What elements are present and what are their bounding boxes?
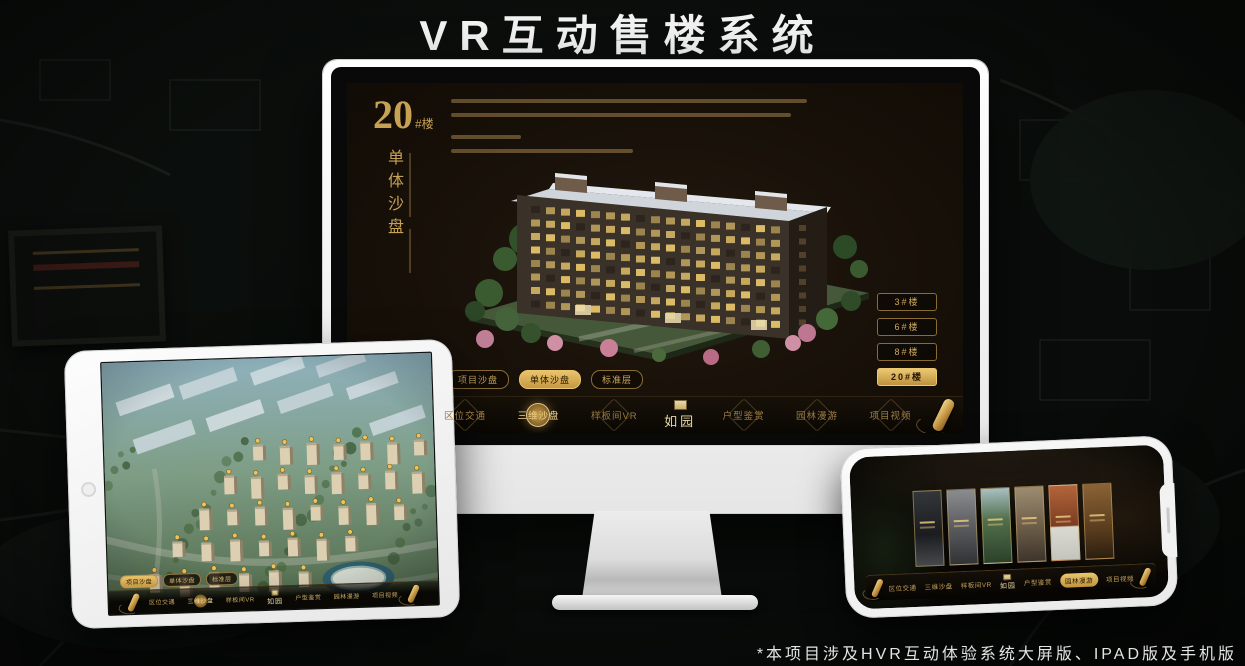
footnote: *本项目涉及HVR互动体验系统大屏版、IPAD版及手机版 [757,640,1237,664]
building-button-3[interactable]: 3#楼 [877,293,937,311]
gallery-card[interactable] [980,487,1012,564]
seal-icon [271,590,278,596]
scroll-handle-icon[interactable] [871,578,884,598]
menu-item-3d-sandtable[interactable]: 三维沙盘 [512,405,564,425]
gallery-card[interactable] [946,488,978,565]
interior-beam-decor [939,454,1090,486]
menu-item-garden-roam[interactable]: 园林漫游 [1060,572,1099,588]
scroll-handle-icon[interactable] [1139,567,1152,587]
menu-item-location-traffic[interactable]: 区位交通 [149,597,175,607]
building-heading: 20#楼 [373,95,434,135]
seal-icon [674,400,687,410]
tab-single-building-sandtable[interactable]: 单体沙盘 [163,573,201,587]
vertical-caption-decor [409,229,411,273]
tab-project-sandtable[interactable]: 项目沙盘 [120,574,158,588]
scroll-handle-icon[interactable] [127,593,140,613]
menu-item-model-room-vr[interactable]: 样板间VR [226,594,255,604]
phone-notch [1159,483,1177,558]
menu-item-3d-sandtable[interactable]: 三维沙盘 [187,596,213,606]
gallery-cards [912,483,1114,567]
scroll-handle-icon[interactable] [407,584,420,604]
scroll-handle-icon[interactable] [931,397,956,432]
tablet-device: 项目沙盘 单体沙盘 标准层 区位交通 三维沙盘 样板间VR 如园 户型鉴赏 园林… [64,339,461,629]
vertical-caption-decor [409,153,411,217]
poster-canvas: VR互动售楼系统 20#楼 单体沙盘 [0,0,1245,666]
phone-screen: 区位交通 三维沙盘 样板间VR 如园 户型鉴赏 园林漫游 项目视频 [849,444,1169,609]
menu-item-model-room-vr[interactable]: 样板间VR [960,578,991,589]
gallery-card[interactable] [912,490,944,567]
menu-item-3d-sandtable[interactable]: 三维沙盘 [924,580,952,591]
menu-item-floorplan[interactable]: 户型鉴赏 [718,405,770,425]
heading-vertical-text: 单体沙盘 [381,149,405,241]
intro-text-line [451,135,521,139]
logo-text: 如园 [267,596,283,606]
tablet-camera [81,482,96,497]
menu-item-garden-roam[interactable]: 园林漫游 [791,405,843,425]
framed-plaque [8,225,166,346]
tab-single-building-sandtable[interactable]: 单体沙盘 [519,370,581,389]
phone-menu-bar: 区位交通 三维沙盘 样板间VR 如园 户型鉴赏 园林漫游 项目视频 [866,563,1157,601]
building-number: 20 [373,92,413,137]
gallery-card[interactable] [1014,486,1046,563]
tablet-screen: 项目沙盘 单体沙盘 标准层 区位交通 三维沙盘 样板间VR 如园 户型鉴赏 园林… [100,352,440,616]
building-number-suffix: #楼 [415,117,434,131]
tab-standard-floor[interactable]: 标准层 [591,370,643,389]
menu-item-project-video[interactable]: 项目视频 [865,405,917,425]
monitor-sub-tabs: 项目沙盘 单体沙盘 标准层 [447,370,643,389]
menu-item-floorplan[interactable]: 户型鉴赏 [1024,576,1052,587]
gallery-card[interactable] [1082,483,1114,560]
gallery-card[interactable] [1048,484,1080,561]
monitor-stand-neck [582,511,722,599]
menu-item-model-room-vr[interactable]: 样板间VR [586,405,643,425]
logo-text: 如园 [1000,581,1016,592]
page-title: VR互动售楼系统 [0,2,1245,63]
building-button-8[interactable]: 8#楼 [877,343,937,361]
menu-item-location-traffic[interactable]: 区位交通 [439,405,491,425]
tab-standard-floor[interactable]: 标准层 [206,572,238,586]
tab-project-sandtable[interactable]: 项目沙盘 [447,370,509,389]
intro-text-line [451,99,807,103]
seal-icon [1003,574,1011,580]
menu-item-project-video[interactable]: 项目视频 [372,590,398,600]
building-button-20[interactable]: 20#楼 [877,368,937,386]
ruyuan-logo[interactable]: 如园 [999,574,1016,592]
building-selector: 3#楼 6#楼 8#楼 20#楼 [877,293,937,386]
ruyuan-logo[interactable]: 如园 [267,589,284,606]
monitor-stand-base [552,595,758,610]
speaker-slot [1166,507,1170,533]
intro-text-line [451,113,791,117]
menu-item-location-traffic[interactable]: 区位交通 [888,581,916,592]
phone-device: 区位交通 三维沙盘 样板间VR 如园 户型鉴赏 园林漫游 项目视频 [840,435,1179,619]
building-3d-model[interactable] [459,143,879,393]
logo-text: 如园 [664,411,696,430]
building-button-6[interactable]: 6#楼 [877,318,937,336]
ruyuan-logo[interactable]: 如园 [664,400,696,430]
menu-item-garden-roam[interactable]: 园林漫游 [334,591,360,601]
menu-item-floorplan[interactable]: 户型鉴赏 [295,592,321,602]
